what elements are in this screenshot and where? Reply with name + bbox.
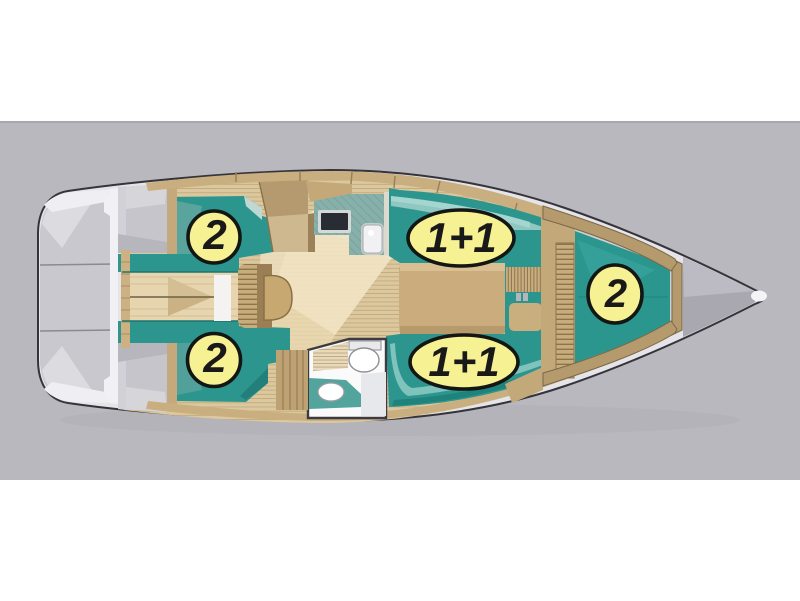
svg-text:2: 2 xyxy=(202,211,226,258)
svg-text:2: 2 xyxy=(202,334,226,381)
svg-text:1+1: 1+1 xyxy=(428,338,499,385)
svg-text:2: 2 xyxy=(604,272,627,316)
svg-text:1+1: 1+1 xyxy=(425,214,496,261)
